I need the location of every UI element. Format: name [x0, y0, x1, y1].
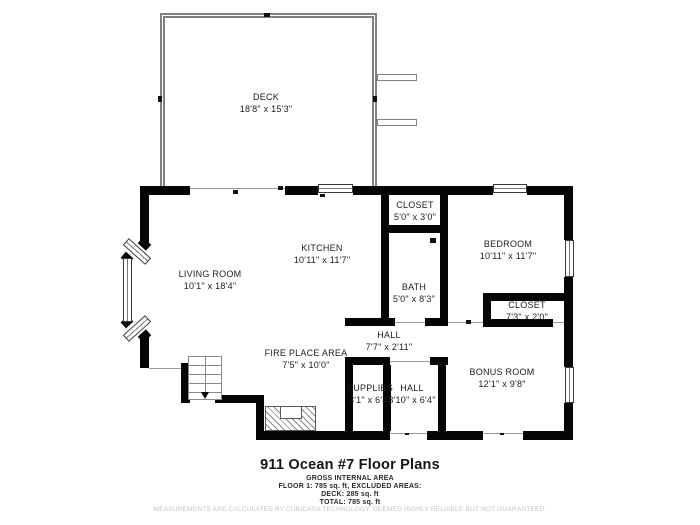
measurement-disclaimer: MEASUREMENTS ARE CALCULATED BY CUBICASA …	[0, 506, 700, 513]
room-label-living-room: LIVING ROOM 10'1" x 18'4"	[179, 268, 242, 292]
wall-segment	[564, 277, 573, 367]
room-dims: 7'3" x 2'0"	[506, 311, 548, 323]
room-label-bedroom: BEDROOM 10'11" x 11'7"	[480, 238, 537, 262]
window	[318, 184, 353, 193]
wall-tick	[233, 190, 238, 194]
room-name: SUPPLIES	[347, 382, 393, 394]
room-name: KITCHEN	[294, 242, 351, 254]
wall-tick	[405, 433, 409, 435]
door-opening	[553, 322, 564, 323]
wall-segment	[425, 318, 448, 326]
wall-segment	[140, 186, 149, 244]
wall-segment	[440, 195, 448, 326]
room-dims: 3'1" x 6'4"	[347, 394, 393, 406]
room-label-hall-lower: HALL 3'10" x 6'4"	[388, 382, 435, 406]
room-name: BONUS ROOM	[469, 366, 534, 378]
wall-segment	[256, 431, 390, 440]
door-opening	[390, 361, 430, 362]
floor-plan-page: DECK 18'8" x 15'3" LIVING ROOM 10'1" x 1…	[0, 0, 700, 525]
room-label-closet-bedroom: CLOSET 7'3" x 2'0"	[506, 299, 548, 323]
wall-segment	[353, 186, 493, 195]
total-area-value: TOTAL: 785 sq. ft	[0, 499, 700, 506]
staircase-center-line	[205, 356, 206, 394]
window	[493, 184, 527, 193]
room-dims: 7'5" x 10'0"	[265, 359, 348, 371]
wall-segment	[345, 318, 395, 326]
deck-rail-stub-bottom	[377, 119, 417, 126]
wall-tick	[466, 320, 471, 324]
wall-tick	[320, 194, 325, 197]
room-name: BATH	[393, 281, 435, 293]
gross-internal-area-label: GROSS INTERNAL AREA	[0, 475, 700, 482]
room-label-fireplace-area: FIRE PLACE AREA 7'5" x 10'0"	[265, 347, 348, 371]
wall-segment	[438, 365, 446, 431]
window	[565, 367, 574, 403]
room-dims: 10'11" x 11'7"	[294, 254, 351, 266]
wall-segment	[523, 431, 573, 440]
room-name: CLOSET	[506, 299, 548, 311]
room-name: LIVING ROOM	[179, 268, 242, 280]
wall-segment	[385, 225, 448, 233]
wall-tick	[264, 13, 270, 17]
room-dims: 10'11" x 11'7"	[480, 250, 537, 262]
room-label-deck: DECK 18'8" x 15'3"	[240, 91, 293, 115]
deck-area-value: DECK: 285 sq. ft	[0, 491, 700, 498]
room-dims: 7'7" x 2'11"	[366, 341, 413, 353]
room-label-closet-top: CLOSET 5'0" x 3'0"	[394, 199, 436, 223]
room-label-supplies: SUPPLIES 3'1" x 6'4"	[347, 382, 393, 406]
room-dims: 5'0" x 8'3"	[393, 293, 435, 305]
room-dims: 12'1" x 9'8"	[469, 378, 534, 390]
window	[565, 240, 574, 277]
wall-tick	[158, 96, 162, 102]
room-dims: 10'1" x 18'4"	[179, 280, 242, 292]
wall-segment	[427, 431, 483, 440]
wall-tick	[278, 186, 283, 190]
door-opening	[395, 322, 425, 323]
room-dims: 5'0" x 3'0"	[394, 211, 436, 223]
room-name: BEDROOM	[480, 238, 537, 250]
wall-segment	[256, 398, 264, 440]
room-name: FIRE PLACE AREA	[265, 347, 348, 359]
floor1-area-value: FLOOR 1: 785 sq. ft, EXCLUDED AREAS:	[0, 483, 700, 490]
room-name: HALL	[388, 382, 435, 394]
room-label-hall-upper: HALL 7'7" x 2'11"	[366, 329, 413, 353]
room-dims: 18'8" x 15'3"	[240, 103, 293, 115]
wall-segment	[381, 195, 389, 322]
room-name: CLOSET	[394, 199, 436, 211]
room-dims: 3'10" x 6'4"	[388, 394, 435, 406]
bay-window	[123, 258, 132, 322]
wall-tick	[373, 96, 377, 102]
room-label-bonus-room: BONUS ROOM 12'1" x 9'8"	[469, 366, 534, 390]
deck-rail-stub-top	[377, 74, 417, 81]
room-label-kitchen: KITCHEN 10'11" x 11'7"	[294, 242, 351, 266]
room-name: DECK	[240, 91, 293, 103]
staircase-down-arrow	[201, 392, 209, 399]
page-title: 911 Ocean #7 Floor Plans	[0, 457, 700, 473]
door-opening	[190, 188, 285, 189]
wall-tick	[430, 238, 436, 243]
door-opening	[149, 368, 181, 369]
wall-tick	[500, 433, 504, 435]
room-label-bath: BATH 5'0" x 8'3"	[393, 281, 435, 305]
wall-segment	[285, 186, 318, 195]
room-name: HALL	[366, 329, 413, 341]
wall-segment	[564, 186, 573, 240]
wall-segment	[430, 357, 448, 365]
fireplace-notch	[280, 406, 302, 419]
